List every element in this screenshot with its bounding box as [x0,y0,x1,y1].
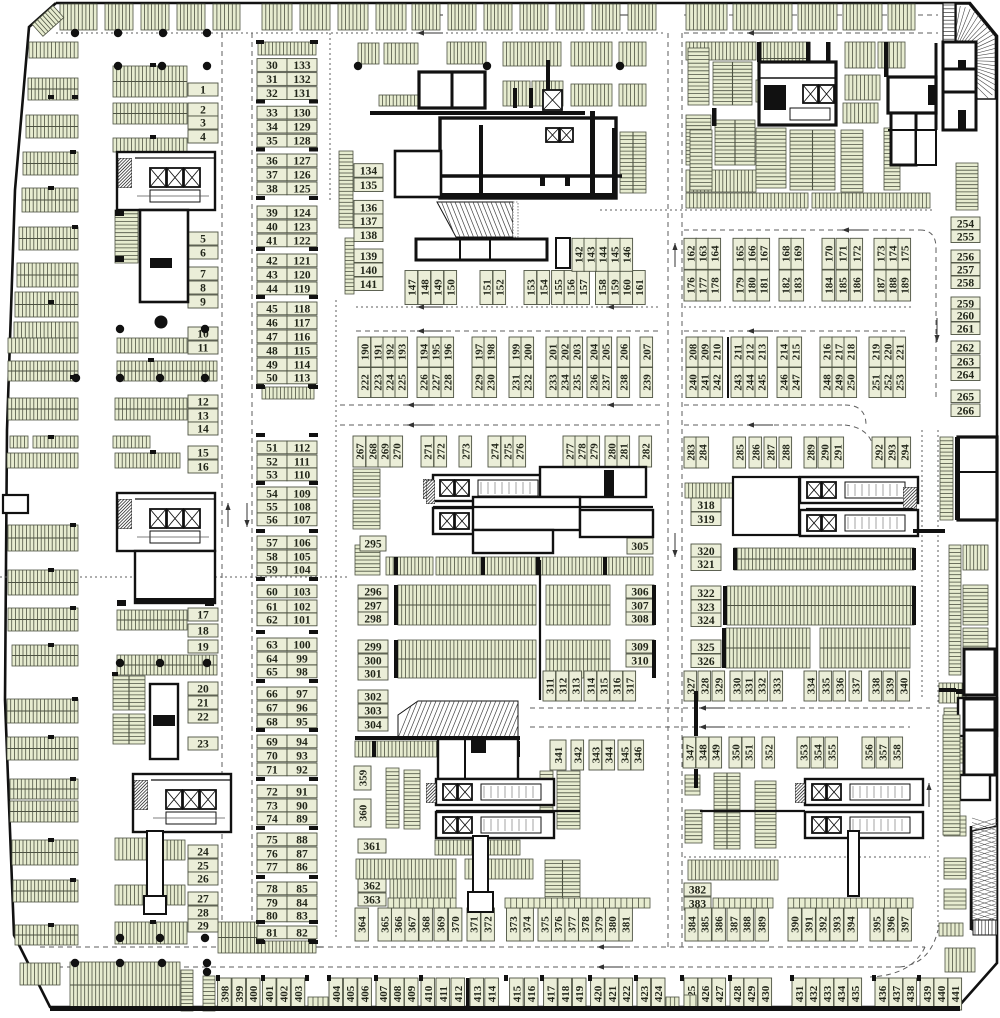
svg-text:338: 338 [870,677,882,694]
svg-text:175: 175 [899,245,911,262]
svg-text:3: 3 [200,118,206,130]
svg-text:296: 296 [364,587,382,599]
svg-text:381: 381 [621,916,633,933]
svg-text:218: 218 [845,343,857,360]
svg-text:103: 103 [293,587,311,599]
svg-text:410: 410 [423,985,435,1002]
svg-text:170: 170 [823,245,835,262]
svg-text:213: 213 [756,343,768,360]
svg-text:124: 124 [293,208,311,220]
svg-text:53: 53 [266,470,278,482]
svg-text:1: 1 [200,85,206,97]
svg-text:308: 308 [631,614,649,626]
svg-text:346: 346 [632,746,644,763]
svg-text:419: 419 [574,985,586,1002]
svg-text:140: 140 [360,265,378,277]
svg-text:180: 180 [746,277,758,294]
svg-text:40: 40 [266,222,278,234]
svg-text:229: 229 [473,374,485,391]
svg-text:339: 339 [884,677,896,694]
svg-text:210: 210 [711,343,723,360]
svg-text:63: 63 [266,640,278,652]
svg-text:143: 143 [585,246,597,263]
svg-text:83: 83 [296,911,308,923]
svg-text:285: 285 [734,444,746,461]
svg-text:246: 246 [778,374,790,391]
svg-text:277: 277 [564,443,576,460]
svg-text:28: 28 [197,908,209,920]
svg-text:26: 26 [197,874,209,886]
svg-text:233: 233 [547,374,559,391]
svg-text:181: 181 [758,277,770,294]
svg-text:203: 203 [571,343,583,360]
svg-text:252: 252 [882,374,894,391]
svg-text:69: 69 [266,737,278,749]
svg-text:427: 427 [714,985,726,1002]
svg-text:85: 85 [296,884,308,896]
svg-text:98: 98 [296,667,308,679]
svg-text:195: 195 [430,343,442,360]
svg-text:39: 39 [266,208,278,220]
svg-text:369: 369 [436,916,448,933]
svg-text:117: 117 [294,318,311,330]
svg-text:256: 256 [957,251,975,263]
svg-text:95: 95 [296,717,308,729]
svg-text:372: 372 [483,916,495,933]
svg-text:205: 205 [600,343,612,360]
svg-text:157: 157 [578,279,590,296]
svg-text:177: 177 [697,277,709,294]
svg-text:154: 154 [538,279,550,296]
svg-text:371: 371 [469,916,481,933]
svg-text:113: 113 [294,373,311,385]
svg-text:2: 2 [200,105,206,117]
svg-text:32: 32 [266,88,278,100]
svg-text:199: 199 [510,343,522,360]
svg-text:148: 148 [419,279,431,296]
svg-text:263: 263 [957,356,975,368]
svg-text:155: 155 [553,279,565,296]
svg-text:234: 234 [559,374,571,391]
svg-text:429: 429 [746,985,758,1002]
svg-text:158: 158 [597,279,609,296]
svg-text:292: 292 [873,444,885,461]
svg-text:295: 295 [364,539,382,551]
svg-text:245: 245 [756,374,768,391]
svg-text:106: 106 [293,538,311,550]
svg-text:225: 225 [396,374,408,391]
svg-text:156: 156 [565,279,577,296]
svg-text:294: 294 [899,444,911,461]
svg-text:122: 122 [293,236,311,248]
svg-text:166: 166 [746,245,758,262]
svg-text:237: 237 [600,374,612,391]
svg-text:318: 318 [697,500,715,512]
svg-text:27: 27 [197,894,209,906]
svg-text:169: 169 [792,245,804,262]
svg-text:406: 406 [360,985,372,1002]
svg-text:25: 25 [197,861,209,873]
svg-text:370: 370 [450,916,462,933]
svg-text:196: 196 [442,343,454,360]
svg-text:395: 395 [872,916,884,933]
svg-text:104: 104 [293,565,311,577]
svg-text:433: 433 [822,985,834,1002]
svg-text:19: 19 [197,642,209,654]
svg-text:212: 212 [744,343,756,360]
svg-text:231: 231 [510,374,522,391]
svg-text:387: 387 [729,916,741,933]
svg-text:100: 100 [293,640,311,652]
svg-text:408: 408 [392,985,404,1002]
svg-text:414: 414 [487,985,499,1002]
svg-text:45: 45 [266,304,278,316]
svg-text:432: 432 [808,985,820,1002]
svg-text:201: 201 [547,344,559,361]
svg-text:121: 121 [293,256,311,268]
svg-text:280: 280 [606,443,618,460]
svg-text:162: 162 [685,245,697,262]
svg-text:428: 428 [732,985,744,1002]
svg-text:388: 388 [742,916,754,933]
svg-text:64: 64 [266,654,278,666]
svg-text:393: 393 [832,916,844,933]
svg-text:230: 230 [485,374,497,391]
svg-text:54: 54 [266,489,278,501]
svg-text:59: 59 [266,565,278,577]
svg-text:236: 236 [588,374,600,391]
svg-text:72: 72 [266,787,278,799]
svg-text:399: 399 [234,985,246,1002]
svg-text:348: 348 [697,744,709,761]
svg-text:222: 222 [359,374,371,391]
svg-text:189: 189 [899,277,911,294]
svg-text:271: 271 [422,443,434,460]
svg-text:57: 57 [266,538,278,550]
svg-text:275: 275 [502,443,514,460]
svg-text:42: 42 [266,256,278,268]
svg-text:51: 51 [266,443,278,455]
svg-text:415: 415 [511,985,523,1002]
svg-text:223: 223 [372,374,384,391]
svg-text:391: 391 [804,916,816,933]
svg-text:248: 248 [821,374,833,391]
svg-text:108: 108 [293,502,311,514]
svg-text:242: 242 [711,374,723,391]
svg-text:193: 193 [396,343,408,360]
svg-text:126: 126 [293,170,311,182]
svg-text:144: 144 [597,246,609,263]
svg-text:147: 147 [406,279,418,296]
svg-text:247: 247 [790,374,802,391]
svg-text:392: 392 [818,916,830,933]
svg-text:241: 241 [699,374,711,391]
svg-text:118: 118 [294,304,311,316]
svg-text:132: 132 [293,74,311,86]
svg-text:146: 146 [621,246,633,263]
svg-text:272: 272 [435,443,447,460]
svg-text:362: 362 [363,881,381,893]
svg-text:290: 290 [819,444,831,461]
svg-text:286: 286 [750,444,762,461]
svg-text:202: 202 [559,343,571,360]
svg-text:398: 398 [219,985,231,1002]
svg-text:352: 352 [763,744,775,761]
svg-text:112: 112 [294,443,311,455]
svg-text:11: 11 [198,343,209,355]
svg-text:174: 174 [887,245,899,262]
svg-text:111: 111 [294,457,310,469]
svg-text:300: 300 [364,656,382,668]
svg-text:366: 366 [393,916,405,933]
svg-text:17: 17 [197,610,209,622]
svg-text:128: 128 [293,136,311,148]
svg-text:33: 33 [266,108,278,120]
svg-text:309: 309 [631,642,649,654]
svg-text:61: 61 [266,602,278,614]
svg-text:273: 273 [460,443,472,460]
svg-text:88: 88 [296,835,308,847]
svg-text:380: 380 [607,916,619,933]
svg-text:188: 188 [887,277,899,294]
svg-text:200: 200 [522,343,534,360]
svg-text:316: 316 [611,677,623,694]
svg-text:424: 424 [653,985,665,1002]
svg-text:90: 90 [296,801,308,813]
svg-text:350: 350 [730,744,742,761]
svg-text:134: 134 [360,166,378,178]
svg-text:219: 219 [870,343,882,360]
svg-text:23: 23 [197,739,209,751]
svg-text:253: 253 [894,374,906,391]
svg-text:151: 151 [481,279,493,296]
svg-text:325: 325 [697,642,715,654]
svg-text:378: 378 [580,916,592,933]
svg-text:363: 363 [363,895,381,907]
svg-text:329: 329 [713,677,725,694]
svg-text:437: 437 [891,985,903,1002]
svg-text:82: 82 [296,928,308,940]
svg-text:89: 89 [296,814,308,826]
svg-text:340: 340 [898,677,910,694]
svg-text:123: 123 [293,222,311,234]
svg-text:355: 355 [826,744,838,761]
svg-text:190: 190 [359,343,371,360]
svg-text:311: 311 [544,678,556,694]
svg-text:267: 267 [354,443,366,460]
svg-text:315: 315 [598,677,610,694]
svg-text:235: 235 [571,374,583,391]
svg-text:86: 86 [296,862,308,874]
svg-text:254: 254 [957,218,975,230]
svg-text:297: 297 [364,601,382,613]
svg-text:390: 390 [790,916,802,933]
svg-text:91: 91 [296,787,308,799]
svg-text:401: 401 [264,986,276,1003]
svg-text:120: 120 [293,270,311,282]
svg-text:183: 183 [792,277,804,294]
svg-text:418: 418 [560,985,572,1002]
svg-text:397: 397 [900,916,912,933]
svg-text:270: 270 [391,443,403,460]
svg-text:319: 319 [697,514,715,526]
svg-text:298: 298 [364,614,382,626]
svg-text:153: 153 [525,279,537,296]
svg-text:96: 96 [296,703,308,715]
svg-text:56: 56 [266,515,278,527]
svg-text:354: 354 [812,744,824,761]
svg-text:131: 131 [293,88,311,100]
svg-text:81: 81 [266,928,278,940]
svg-text:37: 37 [266,170,278,182]
svg-text:335: 335 [820,677,832,694]
svg-text:206: 206 [618,343,630,360]
svg-text:15: 15 [197,448,209,460]
svg-text:68: 68 [266,717,278,729]
svg-text:50: 50 [266,373,278,385]
svg-text:333: 333 [771,677,783,694]
svg-text:239: 239 [641,374,653,391]
svg-text:214: 214 [778,343,790,360]
svg-text:75: 75 [266,835,278,847]
svg-text:197: 197 [473,343,485,360]
svg-text:336: 336 [834,677,846,694]
svg-text:224: 224 [384,374,396,391]
svg-text:31: 31 [266,74,278,86]
svg-text:13: 13 [197,411,209,423]
svg-text:22: 22 [197,712,209,724]
svg-text:244: 244 [744,374,756,391]
svg-text:173: 173 [875,245,887,262]
svg-text:345: 345 [619,746,631,763]
svg-text:341: 341 [553,747,565,764]
svg-text:186: 186 [851,277,863,294]
svg-text:194: 194 [418,343,430,360]
svg-text:265: 265 [957,391,975,403]
svg-text:407: 407 [378,985,390,1002]
svg-text:74: 74 [266,814,278,826]
svg-text:238: 238 [618,374,630,391]
svg-text:141: 141 [360,279,378,291]
svg-text:187: 187 [875,277,887,294]
svg-text:178: 178 [709,277,721,294]
svg-text:43: 43 [266,270,278,282]
svg-text:62: 62 [266,615,278,627]
svg-text:314: 314 [585,677,597,694]
svg-text:313: 313 [570,677,582,694]
svg-text:343: 343 [590,746,602,763]
svg-text:353: 353 [798,744,810,761]
svg-text:403: 403 [293,985,305,1002]
svg-text:119: 119 [294,284,311,296]
svg-text:400: 400 [248,985,260,1002]
svg-text:14: 14 [197,424,209,436]
svg-text:439: 439 [922,985,934,1002]
svg-text:307: 307 [631,601,649,613]
svg-text:430: 430 [760,985,772,1002]
svg-text:84: 84 [296,898,308,910]
svg-text:260: 260 [957,310,975,322]
svg-text:334: 334 [805,677,817,694]
svg-text:405: 405 [345,985,357,1002]
svg-text:312: 312 [557,677,569,694]
svg-text:38: 38 [266,184,278,196]
svg-text:276: 276 [514,443,526,460]
svg-text:137: 137 [360,216,378,228]
svg-text:404: 404 [331,985,343,1002]
svg-text:259: 259 [957,298,975,310]
svg-text:152: 152 [494,279,506,296]
svg-text:36: 36 [266,156,278,168]
svg-text:150: 150 [445,279,457,296]
svg-text:349: 349 [710,744,722,761]
svg-text:161: 161 [634,279,646,296]
svg-text:176: 176 [685,277,697,294]
svg-text:281: 281 [618,443,630,460]
svg-text:409: 409 [406,985,418,1002]
svg-text:87: 87 [296,849,308,861]
svg-text:361: 361 [363,841,381,853]
svg-text:412: 412 [453,985,465,1002]
svg-text:192: 192 [384,343,396,360]
svg-text:129: 129 [293,122,311,134]
svg-text:184: 184 [823,277,835,294]
svg-text:47: 47 [266,332,278,344]
svg-text:164: 164 [709,245,721,262]
svg-text:73: 73 [266,801,278,813]
svg-text:65: 65 [266,667,278,679]
svg-text:375: 375 [540,916,552,933]
svg-text:4: 4 [200,132,206,144]
svg-text:243: 243 [732,374,744,391]
svg-text:421: 421 [607,986,619,1003]
svg-text:77: 77 [266,862,278,874]
svg-text:310: 310 [631,656,649,668]
svg-text:60: 60 [266,587,278,599]
svg-text:284: 284 [697,444,709,461]
svg-text:283: 283 [685,444,697,461]
svg-text:116: 116 [294,332,311,344]
svg-text:431: 431 [794,986,806,1003]
svg-text:114: 114 [294,360,311,372]
svg-text:101: 101 [293,615,311,627]
svg-text:8: 8 [200,283,206,295]
svg-text:20: 20 [197,684,209,696]
svg-text:328: 328 [699,677,711,694]
svg-text:5: 5 [200,234,206,246]
svg-text:320: 320 [697,546,715,558]
svg-text:385: 385 [700,916,712,933]
svg-text:160: 160 [621,279,633,296]
svg-text:49: 49 [266,360,278,372]
svg-text:264: 264 [957,369,975,381]
svg-text:198: 198 [485,343,497,360]
svg-text:149: 149 [432,279,444,296]
svg-text:110: 110 [294,470,311,482]
svg-text:139: 139 [360,251,378,263]
svg-text:105: 105 [293,552,311,564]
svg-text:228: 228 [442,374,454,391]
svg-text:332: 332 [756,677,768,694]
svg-text:322: 322 [697,588,715,600]
svg-text:133: 133 [293,60,311,72]
svg-text:358: 358 [891,744,903,761]
svg-text:422: 422 [621,985,633,1002]
svg-text:441: 441 [950,986,962,1003]
svg-text:306: 306 [631,587,649,599]
svg-text:179: 179 [734,277,746,294]
svg-text:436: 436 [877,985,889,1002]
